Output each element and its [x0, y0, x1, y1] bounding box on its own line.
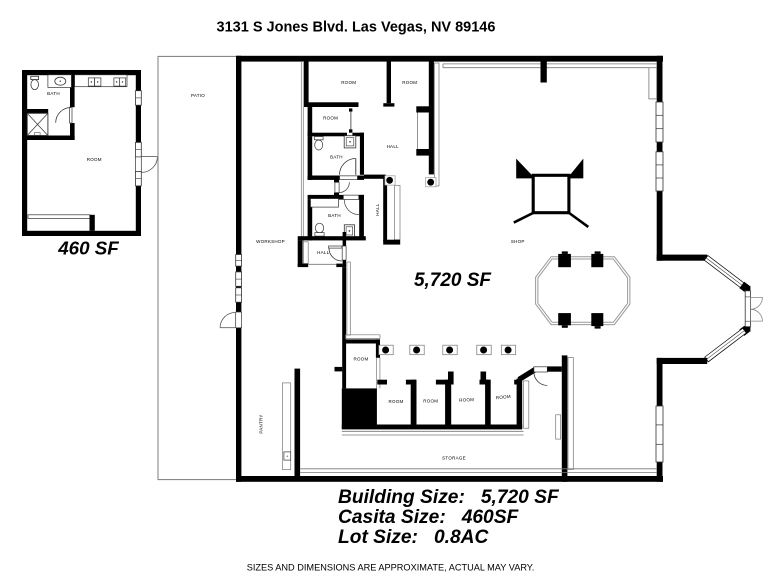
svg-text:PANTRY: PANTRY	[259, 414, 264, 433]
svg-text:ROOM: ROOM	[87, 157, 102, 162]
svg-text:WORKSHOP: WORKSHOP	[256, 239, 285, 244]
svg-text:ROOM: ROOM	[341, 80, 356, 85]
svg-text:460 SF: 460 SF	[57, 238, 119, 259]
svg-text:SHOP: SHOP	[511, 239, 525, 244]
svg-text:ROOM: ROOM	[389, 399, 404, 404]
svg-text:BATH: BATH	[328, 213, 341, 218]
svg-text:ROOM: ROOM	[402, 80, 417, 85]
svg-text:+: +	[286, 455, 288, 459]
svg-text:BATH: BATH	[47, 91, 60, 96]
svg-text:Casita Size: 460SF: Casita Size: 460SF	[338, 507, 520, 528]
svg-text:Lot Size: 0.8AC: Lot Size: 0.8AC	[338, 527, 489, 548]
svg-text:SIZES AND DIMENSIONS ARE APPRO: SIZES AND DIMENSIONS ARE APPROXIMATE, AC…	[247, 563, 535, 573]
svg-text:ROOM: ROOM	[459, 397, 474, 403]
svg-text:ROOM: ROOM	[323, 116, 338, 121]
svg-text:PATIO: PATIO	[191, 93, 205, 98]
svg-text:Building Size: 5,720 SF: Building Size: 5,720 SF	[338, 487, 560, 508]
svg-text:BATH: BATH	[330, 155, 343, 160]
svg-text:HALL: HALL	[375, 203, 380, 216]
svg-text:STORAGE: STORAGE	[442, 456, 466, 461]
svg-text:ROOM: ROOM	[423, 398, 438, 403]
svg-text:HALL: HALL	[387, 144, 400, 149]
svg-text:3131 S Jones Blvd. Las Vegas,: 3131 S Jones Blvd. Las Vegas, NV 89146	[217, 20, 496, 36]
svg-text:ROOM: ROOM	[354, 357, 369, 362]
svg-text:HALL: HALL	[317, 250, 330, 255]
svg-text:5,720 SF: 5,720 SF	[414, 270, 492, 291]
